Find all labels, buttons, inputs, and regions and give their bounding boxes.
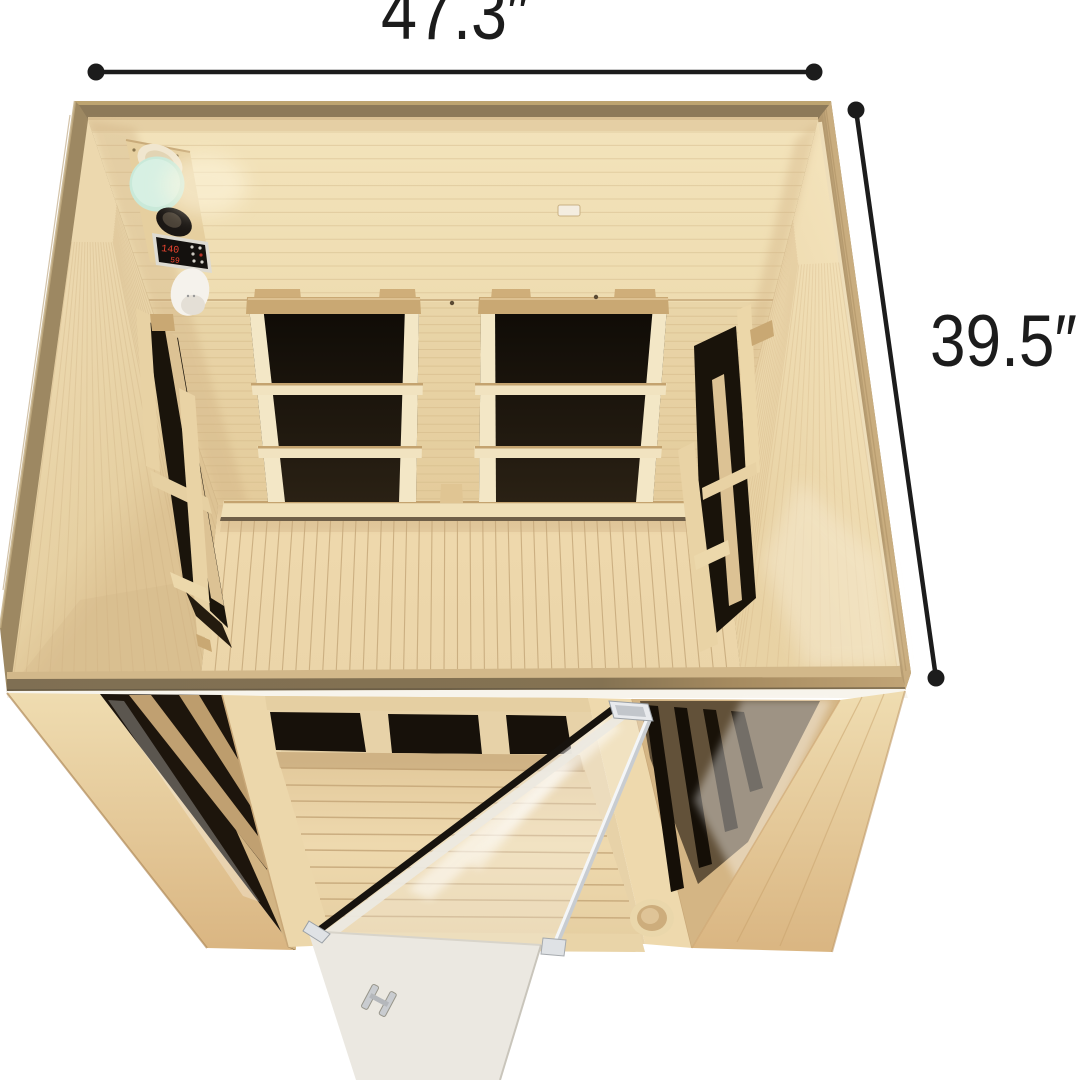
svg-text:47.3″: 47.3″ [381, 0, 530, 56]
svg-text:39.5″: 39.5″ [930, 301, 1077, 382]
svg-text:140: 140 [161, 244, 180, 257]
svg-text:59: 59 [170, 256, 181, 266]
